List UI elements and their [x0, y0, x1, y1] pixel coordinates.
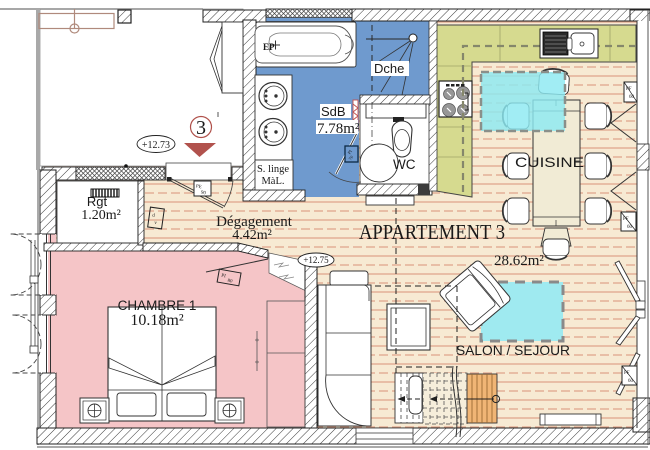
svg-text:+12.75: +12.75: [303, 255, 329, 265]
svg-text:CUISINE: CUISINE: [515, 154, 584, 170]
svg-text:SdB: SdB: [321, 104, 346, 119]
svg-text:Rgt: Rgt: [87, 194, 108, 209]
svg-text:EP: EP: [263, 42, 275, 52]
svg-text:3: 3: [196, 117, 206, 139]
svg-text:+12.73: +12.73: [142, 140, 170, 151]
svg-text:CHAMBRE 1: CHAMBRE 1: [118, 298, 197, 313]
svg-text:SALON / SEJOUR: SALON / SEJOUR: [456, 342, 570, 358]
svg-text:1.20m²: 1.20m²: [81, 208, 121, 223]
svg-text:28.62m²: 28.62m²: [494, 253, 544, 269]
svg-text:PF: PF: [623, 217, 629, 222]
svg-text:PF: PF: [624, 371, 630, 376]
svg-text:MàL.: MàL.: [261, 176, 284, 187]
svg-text:APPARTEMENT 3: APPARTEMENT 3: [359, 220, 505, 244]
svg-text:4.42m²: 4.42m²: [232, 228, 272, 243]
svg-text:PF: PF: [626, 87, 632, 92]
svg-text:10.18m²: 10.18m²: [130, 312, 183, 329]
svg-text:S. linge: S. linge: [257, 164, 289, 175]
svg-text:WC: WC: [393, 157, 416, 172]
svg-text:7.78m²: 7.78m²: [317, 121, 360, 137]
svg-text:60: 60: [627, 225, 633, 230]
svg-text:60: 60: [629, 95, 635, 100]
svg-text:60: 60: [628, 379, 634, 384]
svg-text:Dche: Dche: [374, 61, 404, 76]
